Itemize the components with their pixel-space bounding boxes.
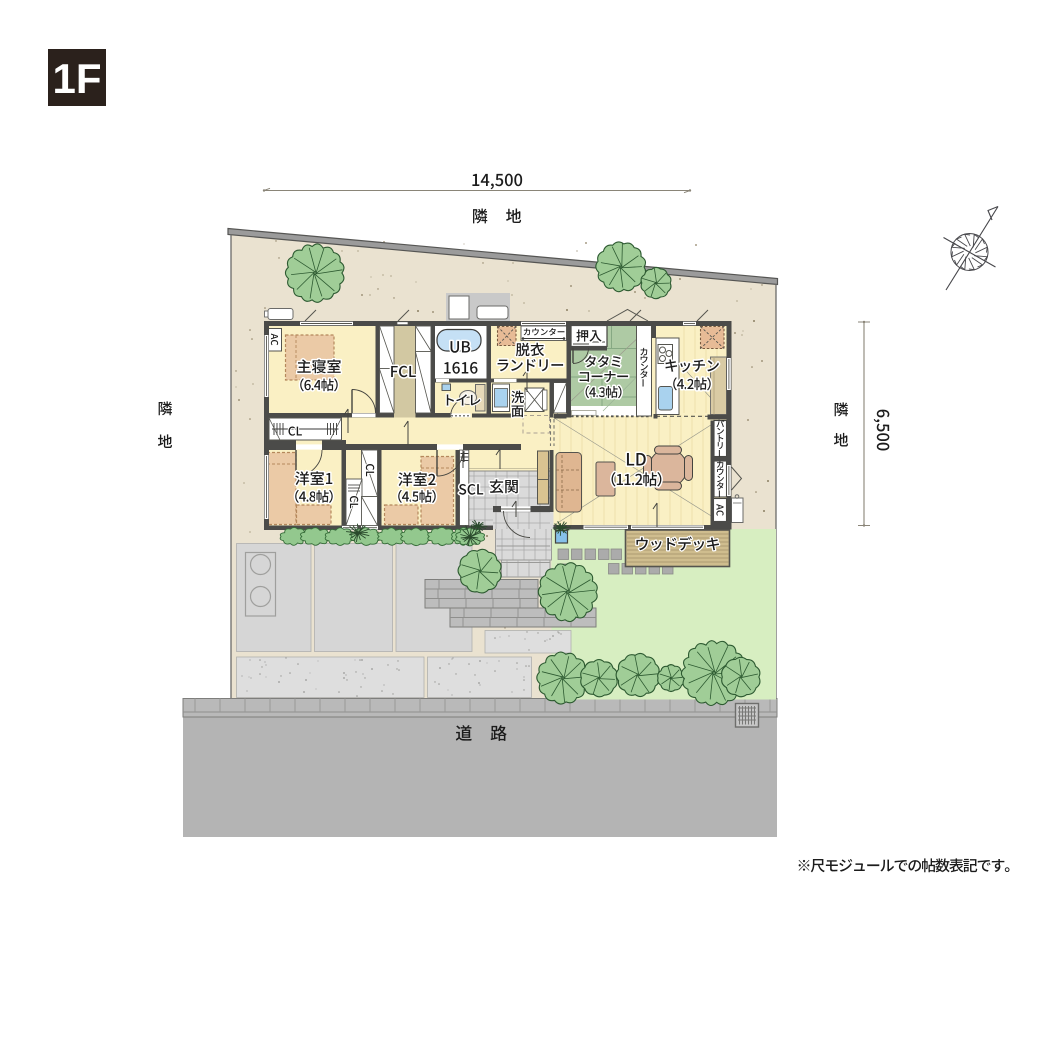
svg-text:1F: 1F xyxy=(52,55,101,102)
